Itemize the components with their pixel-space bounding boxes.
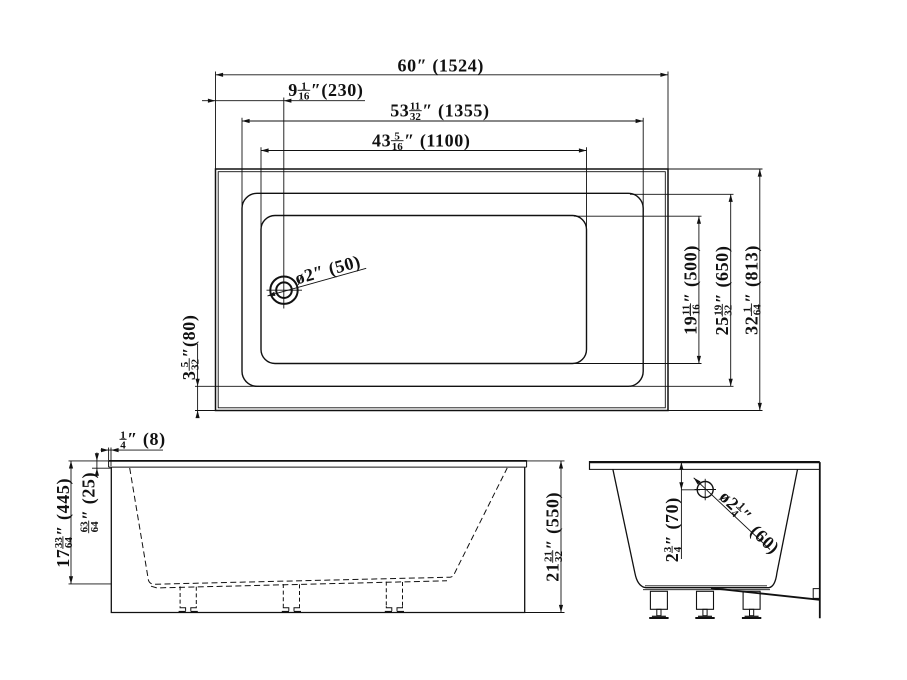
svg-text:21: 21 bbox=[543, 562, 563, 581]
svg-text:32: 32 bbox=[410, 111, 422, 123]
svg-text:32: 32 bbox=[553, 551, 565, 563]
svg-text:25: 25 bbox=[712, 316, 732, 335]
svg-text:64: 64 bbox=[63, 537, 75, 549]
svg-text:4: 4 bbox=[120, 439, 126, 451]
svg-text:″ (550): ″ (550) bbox=[543, 492, 564, 550]
svg-text:4: 4 bbox=[672, 546, 684, 552]
svg-text:″ (1355): ″ (1355) bbox=[422, 101, 489, 122]
svg-text:3: 3 bbox=[179, 370, 199, 380]
svg-text:″ (70): ″ (70) bbox=[662, 497, 683, 545]
svg-text:16: 16 bbox=[298, 90, 310, 102]
svg-text:9: 9 bbox=[288, 80, 298, 100]
svg-text:″ (650): ″ (650) bbox=[712, 246, 733, 304]
svg-text:″(230): ″(230) bbox=[311, 80, 364, 101]
svg-text:16: 16 bbox=[691, 304, 703, 316]
svg-text:″ (25): ″ (25) bbox=[79, 472, 100, 520]
svg-text:17: 17 bbox=[53, 549, 73, 568]
svg-text:43: 43 bbox=[372, 131, 391, 151]
svg-text:2: 2 bbox=[662, 553, 682, 563]
svg-text:″ (445): ″ (445) bbox=[53, 478, 74, 536]
svg-text:″ (500): ″ (500) bbox=[680, 245, 701, 303]
svg-text:60″ (1524): 60″ (1524) bbox=[398, 55, 484, 76]
svg-text:″(80): ″(80) bbox=[179, 315, 200, 358]
svg-text:″ (813): ″ (813) bbox=[741, 245, 762, 303]
svg-text:64: 64 bbox=[89, 521, 101, 533]
svg-text:32: 32 bbox=[741, 316, 761, 335]
svg-text:16: 16 bbox=[392, 141, 404, 153]
svg-text:19: 19 bbox=[680, 316, 700, 335]
svg-text:32: 32 bbox=[189, 359, 201, 371]
svg-text:″ (1100): ″ (1100) bbox=[404, 131, 470, 152]
svg-text:″ (8): ″ (8) bbox=[127, 429, 165, 450]
svg-text:32: 32 bbox=[722, 304, 734, 316]
svg-text:53: 53 bbox=[390, 101, 409, 121]
svg-text:64: 64 bbox=[752, 304, 764, 316]
